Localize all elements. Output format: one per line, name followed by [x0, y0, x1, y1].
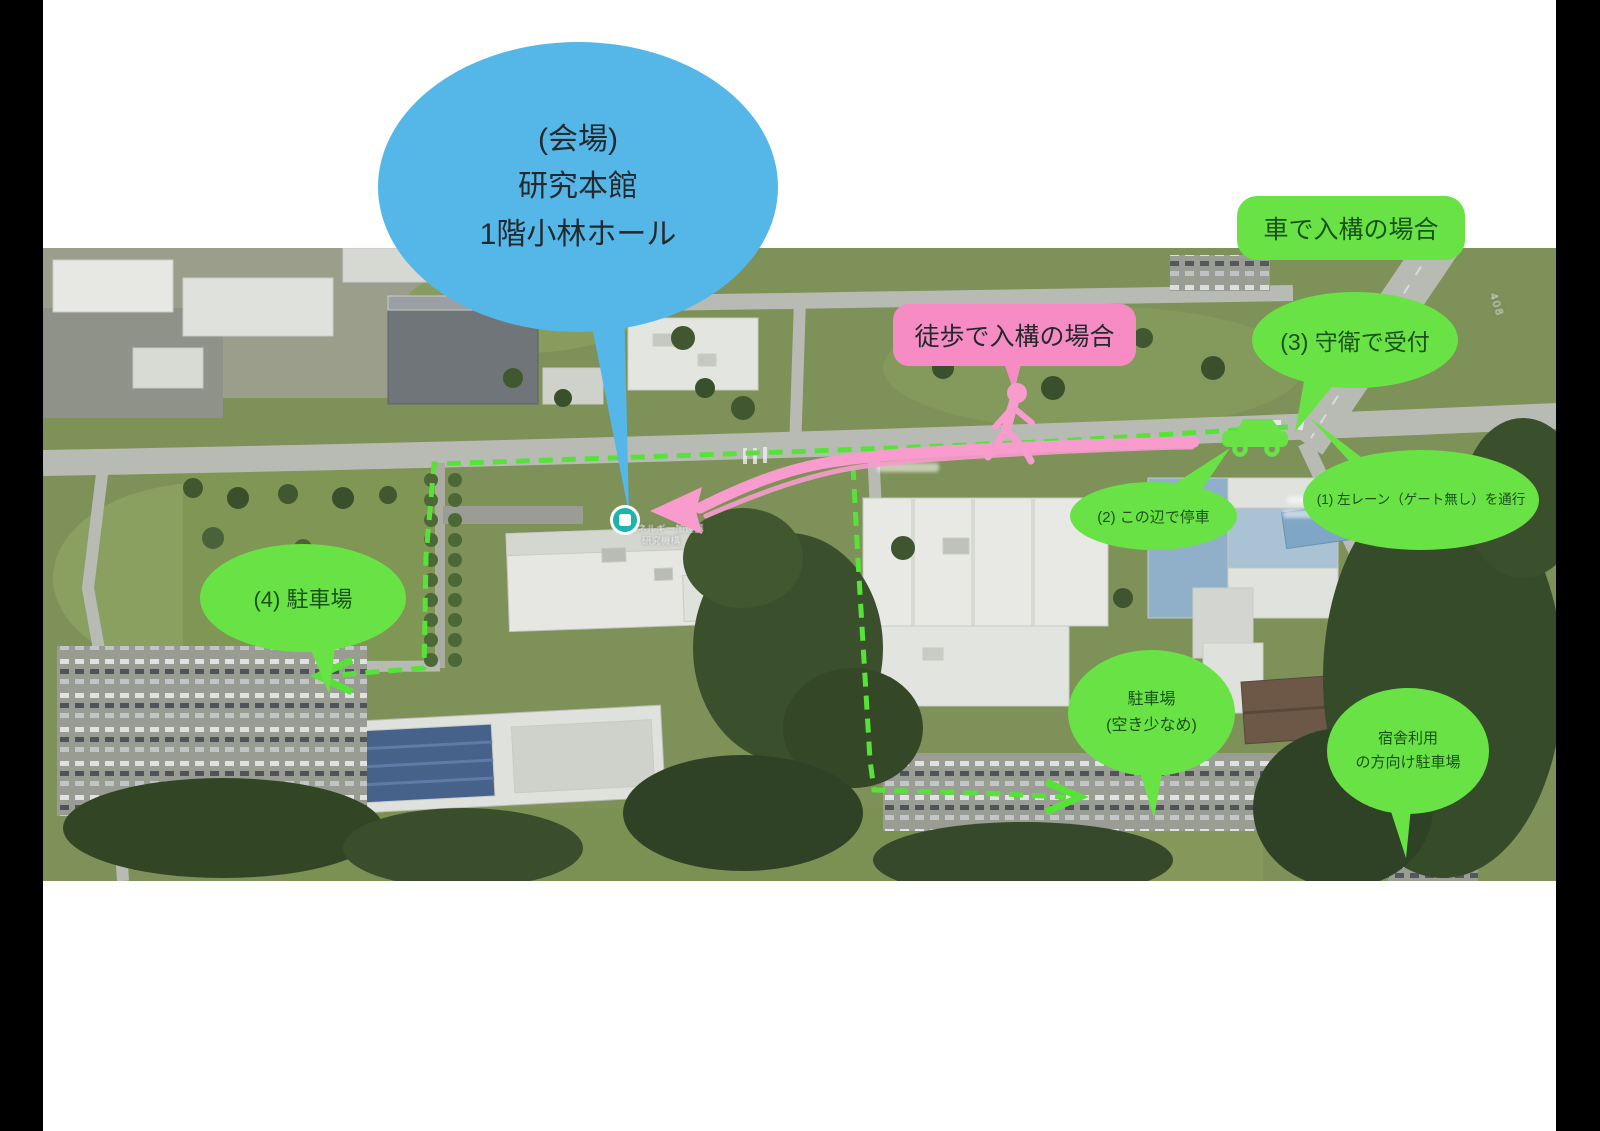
map-label-smudge: [877, 463, 939, 472]
step4-bubble: (4) 駐車場: [200, 544, 406, 652]
letterbox-bar-right: [1556, 0, 1600, 1131]
venue-bubble: (会場) 研究本館 1階小林ホール: [378, 42, 778, 332]
parking-few-bubble: 駐車場 (空き少なめ): [1068, 650, 1235, 776]
walk-entry-label: 徒歩で入構の場合: [893, 304, 1136, 366]
step1-bubble: (1) 左レーン（ゲート無し）を通行: [1303, 450, 1539, 550]
step2-bubble: (2) この辺で停車: [1070, 482, 1237, 550]
venue-line: (会場): [538, 116, 618, 163]
letterbox-bar-left: [0, 0, 43, 1131]
car-entry-label: 車で入構の場合: [1237, 196, 1465, 260]
step3-bubble: (3) 守衛で受付: [1252, 292, 1458, 388]
venue-line: 研究本館: [518, 163, 638, 210]
slide-canvas: 高エネルギー加速器 研究機構 408: [0, 0, 1600, 1131]
parking-lodge-bubble: 宿舎利用 の方向け駐車場: [1327, 688, 1489, 814]
map-label-kek: 高エネルギー加速器 研究機構: [591, 524, 731, 549]
venue-line: 1階小林ホール: [480, 211, 677, 258]
